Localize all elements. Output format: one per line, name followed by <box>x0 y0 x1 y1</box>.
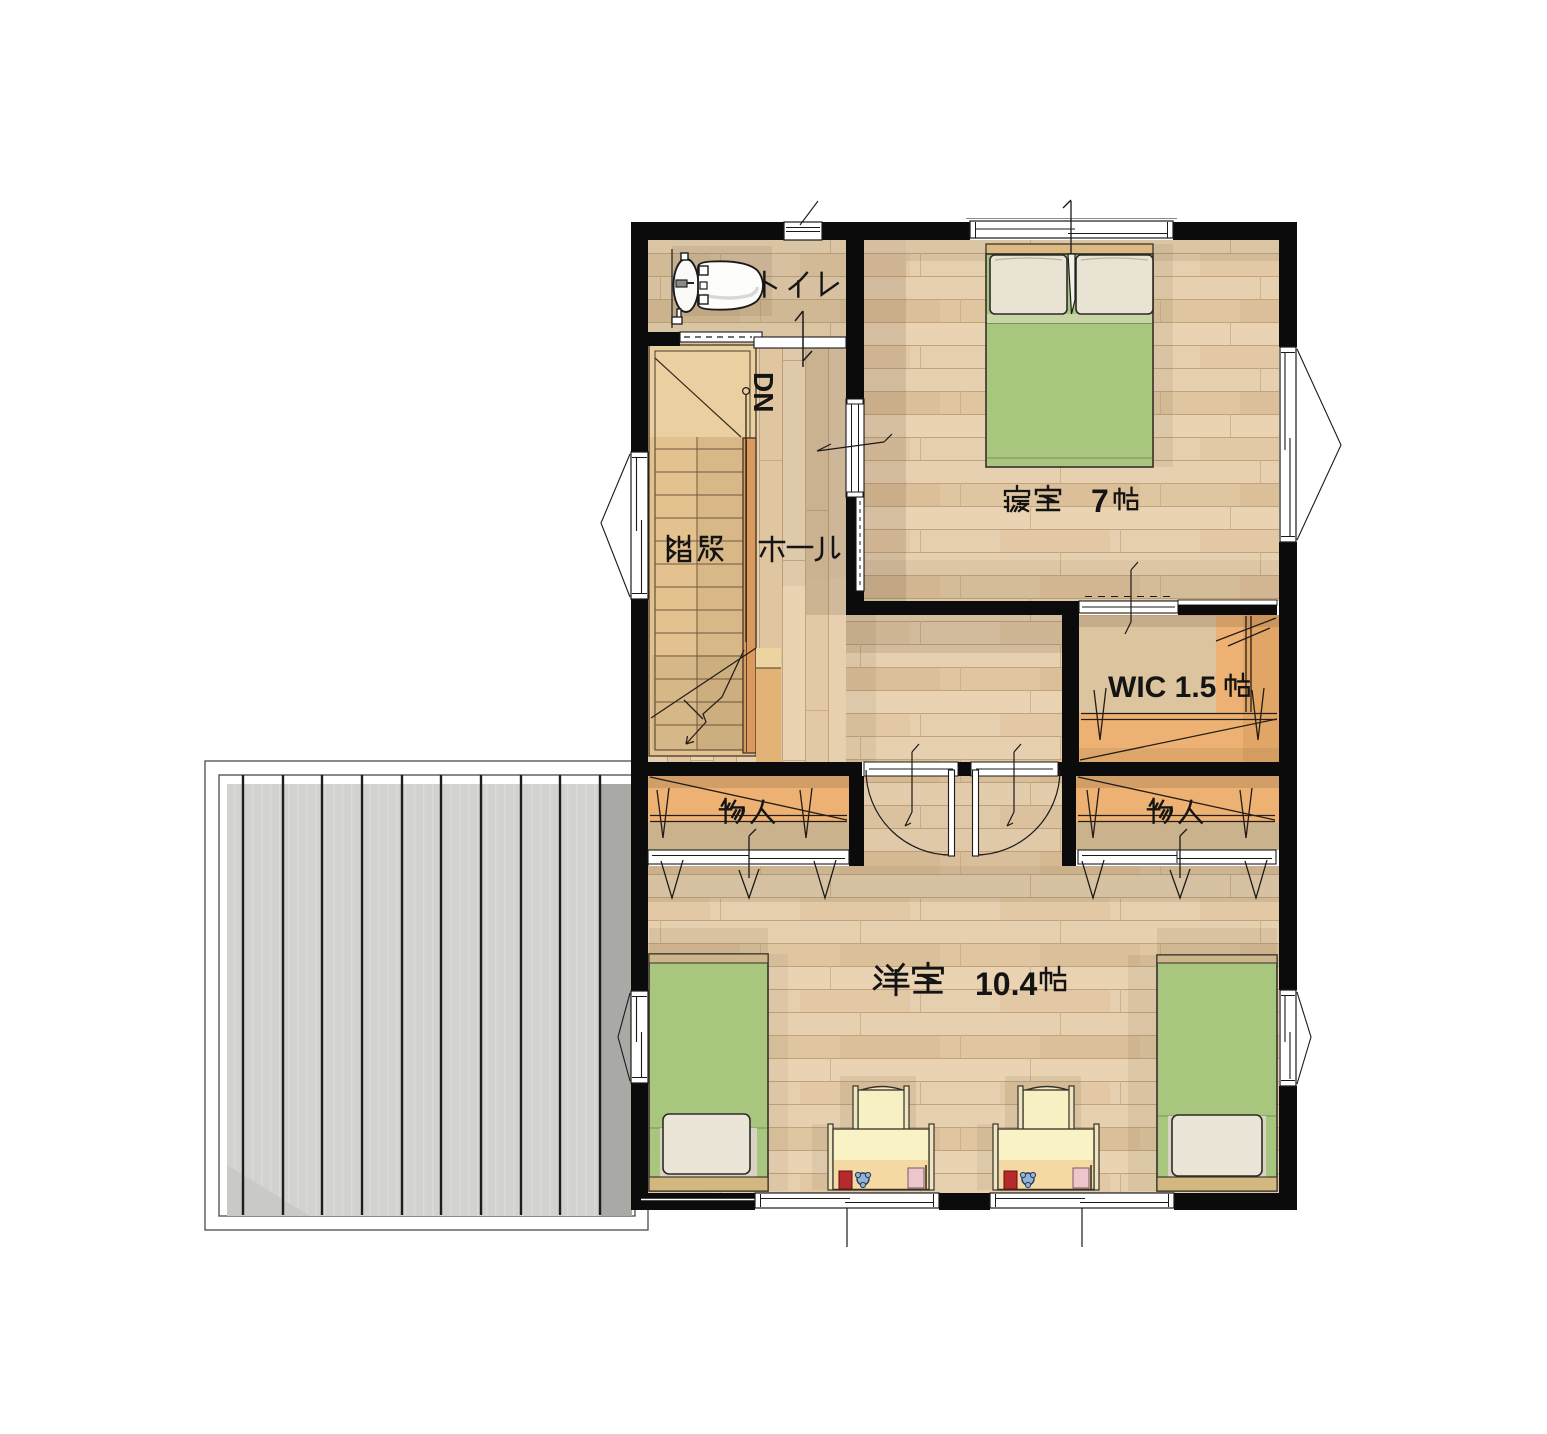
svg-text:10.4: 10.4 <box>975 966 1037 1002</box>
svg-text:DN: DN <box>748 372 779 412</box>
svg-text:WIC 1.5: WIC 1.5 <box>1108 671 1216 704</box>
svg-text:7: 7 <box>1091 483 1109 519</box>
